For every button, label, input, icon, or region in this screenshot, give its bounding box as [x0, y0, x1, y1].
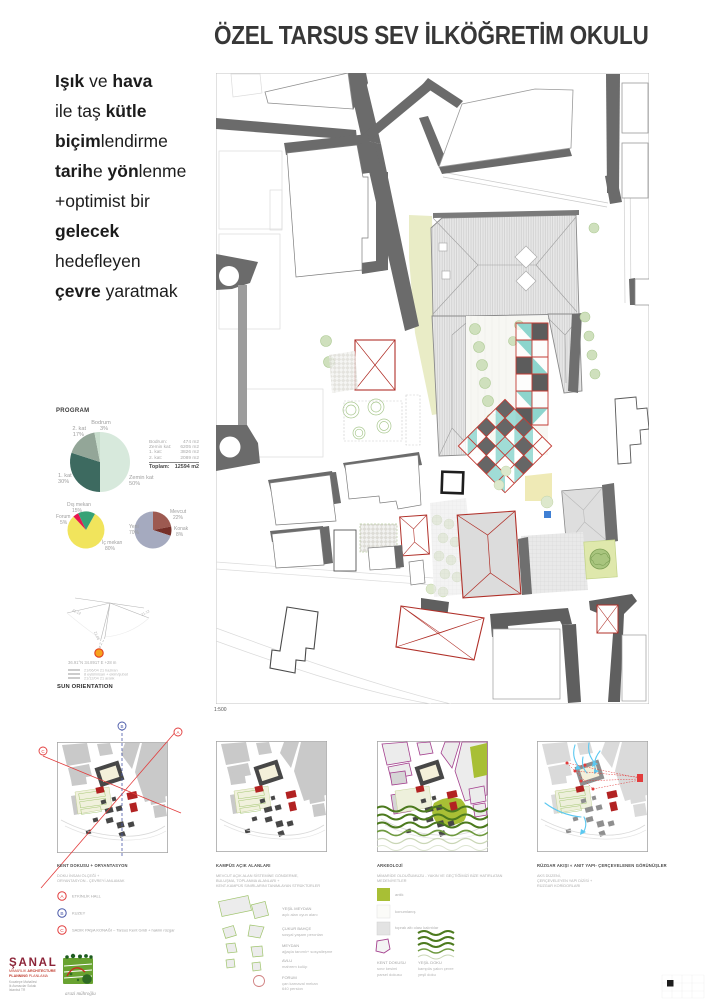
svg-text:C: C: [60, 928, 64, 934]
svg-text:B: B: [60, 911, 63, 917]
svg-text:21.12: 21.12: [72, 608, 82, 615]
svg-text:sosyal yaşam peronları: sosyal yaşam peronları: [282, 932, 323, 937]
svg-text:FORUM: FORUM: [282, 975, 297, 980]
svg-text:21.06: 21.06: [93, 631, 100, 641]
svg-text:PLANNING PLANLAMA: PLANNING PLANLAMA: [9, 974, 49, 978]
svg-text:AVLU: AVLU: [282, 958, 292, 963]
svg-text:80%: 80%: [105, 546, 116, 552]
svg-text:İstanbul TR: İstanbul TR: [9, 987, 26, 992]
svg-text:toprak altı olası kalıntılar: toprak altı olası kalıntılar: [395, 925, 439, 930]
svg-text:KENT DOKUSU: KENT DOKUSU: [377, 960, 406, 965]
svg-text:5%: 5%: [60, 520, 68, 526]
svg-text:yeşil doku: yeşil doku: [418, 972, 436, 977]
svg-text:30%: 30%: [58, 479, 69, 485]
svg-text:sınır kesimi: sınır kesimi: [377, 966, 397, 971]
svg-text:mahrem kulüp: mahrem kulüp: [282, 964, 308, 969]
svg-text:kampüs yakın çevre: kampüs yakın çevre: [418, 966, 454, 971]
svg-text:YEŞİL DOKU: YEŞİL DOKU: [418, 960, 442, 965]
svg-text:8%: 8%: [176, 532, 184, 538]
svg-text:YEŞİL MEYDAN: YEŞİL MEYDAN: [282, 906, 312, 911]
svg-text:36.91°N 34.8917 E +28 m: 36.91°N 34.8917 E +28 m: [68, 660, 117, 665]
svg-text:ağaçla tanımlı+ sosyalleşme: ağaçla tanımlı+ sosyalleşme: [282, 949, 333, 954]
svg-text:ŞANAL: ŞANAL: [9, 957, 58, 969]
svg-text:açık alan oyun alanı: açık alan oyun alanı: [282, 912, 318, 917]
svg-text:ÇUKUR BAHÇE: ÇUKUR BAHÇE: [282, 926, 311, 931]
svg-text:15%: 15%: [72, 508, 83, 514]
svg-text:3%: 3%: [100, 426, 108, 432]
svg-text:MEYDAN: MEYDAN: [282, 943, 299, 948]
svg-text:SADIK PAŞA KONAĞI – Tarsus Ke: SADIK PAŞA KONAĞI – Tarsus Kent Gridi + …: [72, 928, 175, 933]
svg-text:MİMARLIK ARCHITECTURE: MİMARLIK ARCHITECTURE: [9, 968, 56, 973]
svg-text:22%: 22%: [173, 515, 184, 521]
svg-text:50%: 50%: [129, 481, 140, 487]
svg-text:ETKİNLİK HALL: ETKİNLİK HALL: [72, 894, 102, 899]
svg-text:İç mekan: İç mekan: [102, 539, 123, 546]
svg-text:640 persion: 640 persion: [282, 986, 303, 991]
svg-text:A: A: [176, 730, 179, 735]
svg-text:70%: 70%: [129, 530, 140, 536]
svg-text:arazi mühroğlu: arazi mühroğlu: [65, 992, 96, 997]
svg-text:antik: antik: [395, 892, 403, 897]
svg-text:21.12: 21.12: [141, 609, 151, 617]
svg-text:konumlanış: konumlanış: [395, 909, 415, 914]
svg-text:KUZEY: KUZEY: [72, 911, 86, 916]
svg-text:B: B: [120, 724, 123, 729]
svg-text:21/12/04 21 aralık: 21/12/04 21 aralık: [84, 677, 114, 681]
svg-text:17%: 17%: [73, 432, 84, 438]
svg-text:parsel dokusu: parsel dokusu: [377, 972, 402, 977]
